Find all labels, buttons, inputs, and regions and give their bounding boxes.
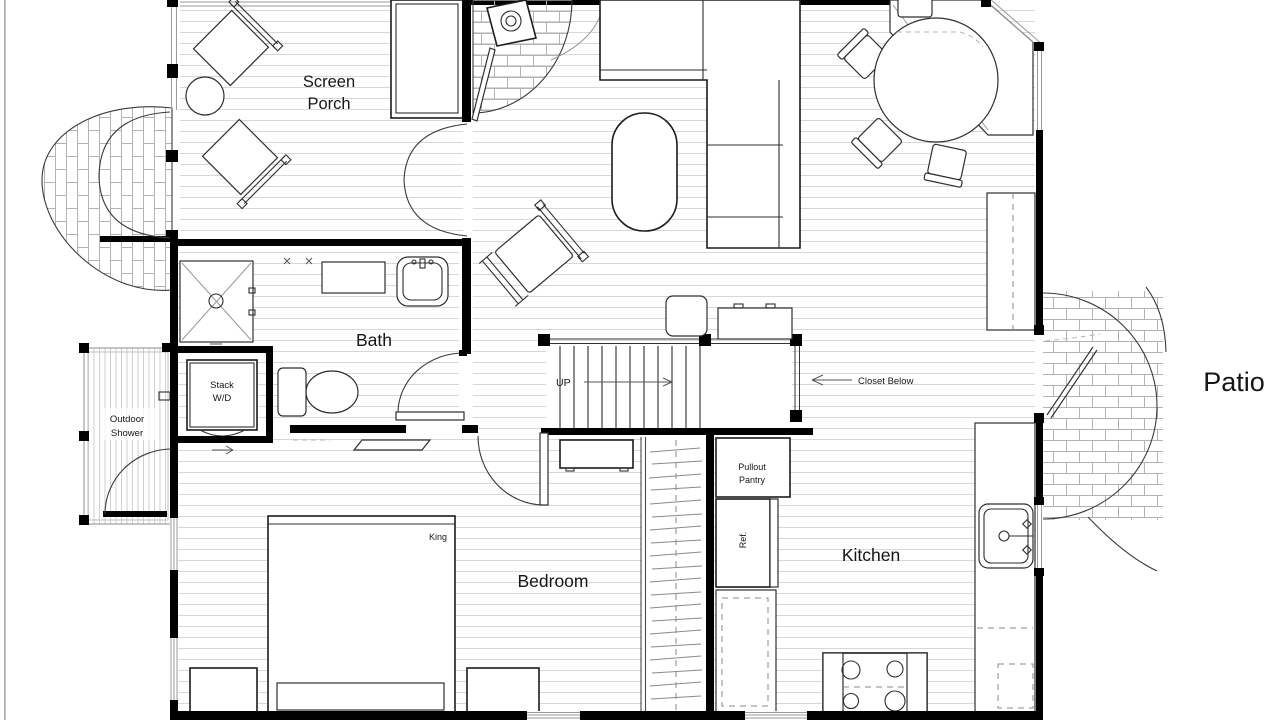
nightstand	[190, 668, 257, 715]
patio-paving	[1043, 287, 1166, 571]
bath-label: Bath	[356, 330, 392, 350]
dresser	[560, 440, 633, 471]
kitchen-counter-left	[716, 590, 776, 712]
porch-daybed	[391, 0, 463, 118]
stack-wd-label-line2: W/D	[213, 393, 232, 404]
stairs-up-label: UP	[556, 377, 571, 389]
dining-table	[874, 18, 998, 142]
range	[823, 653, 927, 713]
outdoor-shower-label-line2: Shower	[111, 428, 143, 439]
shower-stall	[180, 261, 255, 349]
screen-porch-label-line2: Porch	[307, 95, 350, 113]
screen-porch-label-line1: Screen	[303, 73, 355, 91]
stack-wd-label-line1: Stack	[210, 380, 234, 391]
outdoor-shower-label-line1: Outdoor	[110, 414, 144, 425]
bedroom-label: Bedroom	[517, 571, 588, 591]
porch-side-table	[186, 77, 224, 115]
closet-below-label: Closet Below	[858, 376, 914, 387]
stair-side-table	[666, 296, 707, 336]
toilet	[278, 368, 358, 416]
closet-below-cabinet	[718, 304, 792, 339]
kitchen-label: Kitchen	[842, 545, 900, 565]
pullout-pantry-label-line1: Pullout	[738, 462, 766, 472]
bath-shelf	[322, 262, 385, 293]
patio-label: Patio	[1203, 367, 1265, 397]
king-bed	[268, 516, 455, 713]
floor-plan-drawing: UP Closet Below	[0, 0, 1280, 720]
porch-stoop-paving	[42, 107, 172, 291]
nightstand	[467, 668, 539, 715]
dining-chair	[896, 0, 934, 17]
kitchen-sink	[979, 504, 1033, 568]
drawing-border	[4, 0, 6, 720]
king-bed-label: King	[429, 532, 447, 542]
coffee-table	[612, 113, 677, 231]
floor-mat	[354, 440, 430, 450]
refrigerator-label: Ref.	[738, 532, 748, 549]
staircase: UP	[538, 334, 802, 428]
bath-sink	[397, 257, 448, 306]
floor-plan-page: UP Closet Below	[0, 0, 1280, 720]
tall-cabinet	[987, 193, 1035, 330]
pullout-pantry-label-line2: Pantry	[739, 475, 766, 485]
kitchen-counter-right	[975, 423, 1035, 713]
bedroom-closet	[641, 437, 702, 712]
